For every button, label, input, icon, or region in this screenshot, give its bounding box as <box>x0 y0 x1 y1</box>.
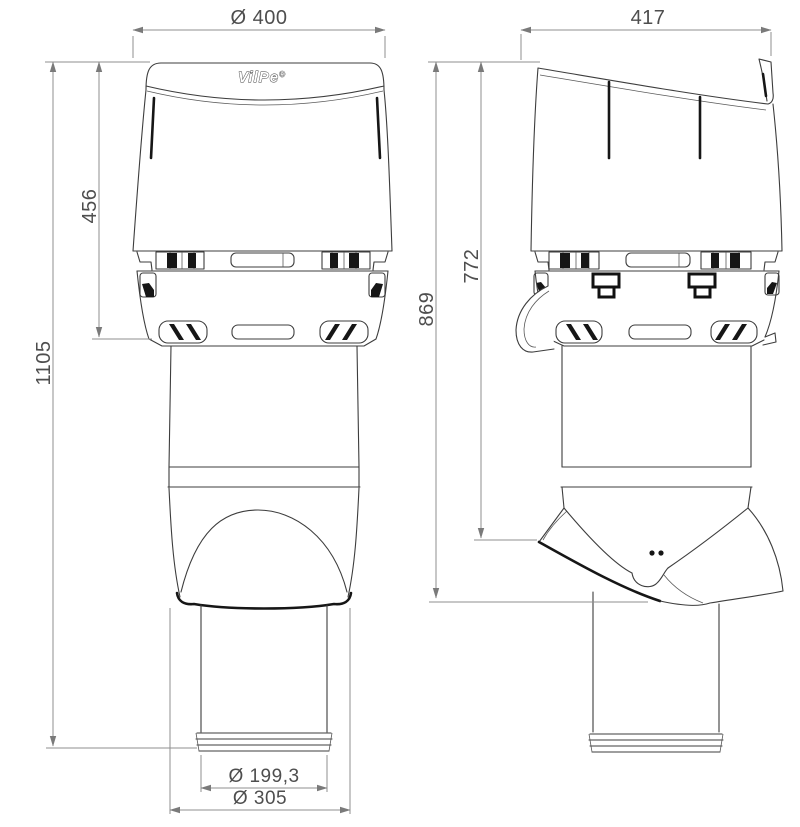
dim-cap-diameter: Ø 400 <box>133 7 385 58</box>
front-latch-black-left-1 <box>167 253 177 268</box>
side-cap-top-slope-inner <box>540 75 766 110</box>
logo-registered-mark: ® <box>279 70 286 79</box>
side-hook-right-mark <box>767 282 777 294</box>
dimension-annotations: Ø 400 417 456 1105 869 <box>33 7 771 814</box>
side-view <box>516 59 783 752</box>
side-vent-left-slash-1 <box>566 324 581 340</box>
side-skirt-rivet-2 <box>658 550 663 555</box>
side-clip-left-lower <box>599 287 614 297</box>
side-skirt-saddle-left <box>564 508 632 573</box>
side-skirt-right-edge <box>748 508 783 591</box>
side-pipe-ring-sides <box>589 734 723 752</box>
side-step-left <box>535 252 549 270</box>
front-cap-right-seam <box>377 98 380 158</box>
dim-cap-diameter-label: Ø 400 <box>231 7 288 29</box>
side-cap-right-edge <box>773 104 782 251</box>
side-skirt-rivet-1 <box>649 550 654 555</box>
front-step-right <box>373 252 388 270</box>
front-cap: VilPe® <box>133 63 392 251</box>
front-vent-right-slash-1 <box>342 324 357 340</box>
front-skirt-drip-edge <box>177 593 351 609</box>
front-latch-black-left-2 <box>188 253 196 268</box>
front-flashing-skirt <box>169 488 359 609</box>
side-cap-top-slope <box>538 68 768 104</box>
front-latch-cluster-right <box>322 252 370 269</box>
front-upper-pipe-right <box>357 346 359 467</box>
front-center-slot-upper <box>231 253 294 267</box>
side-skirt-bottom-slope <box>539 542 660 601</box>
front-skirt-right <box>348 488 359 597</box>
front-skirt-dome-arc <box>181 510 347 592</box>
dim-side-width: 417 <box>521 7 771 60</box>
side-flap-fill <box>516 286 554 352</box>
front-latch-cluster-left <box>156 252 204 269</box>
dim-side-upper-height: 772 <box>461 62 537 540</box>
side-skirt-bottom-right <box>660 591 783 605</box>
side-upper-pipe <box>561 346 752 508</box>
side-flashing-skirt <box>539 508 783 605</box>
dim-total-height: 1105 <box>33 62 197 748</box>
dim-side-total-height-label: 869 <box>416 292 438 327</box>
side-skirt-eave-edge <box>539 508 564 542</box>
side-latch-black-right-2 <box>730 253 740 268</box>
front-lower-body-left <box>137 271 149 339</box>
dim-pipe-diameter: Ø 199,3 <box>201 755 327 792</box>
side-right-notch <box>763 333 776 345</box>
front-lower-pipe <box>196 605 332 751</box>
side-skirt-saddle-right <box>668 508 748 568</box>
side-vent-center <box>629 325 691 339</box>
side-cap-left-edge <box>531 68 538 251</box>
side-clip-left-upper <box>593 274 619 287</box>
front-latch-black-right-2 <box>349 253 359 268</box>
vent-technical-drawing: VilPe® <box>0 0 800 827</box>
side-cap <box>531 59 782 251</box>
front-skirt-left <box>169 488 180 597</box>
side-clip-right-lower <box>695 287 710 297</box>
side-lower-body-right <box>765 271 779 337</box>
dim-side-upper-height-label: 772 <box>461 249 483 284</box>
dim-cap-height-label: 456 <box>79 189 101 224</box>
dim-total-height-label: 1105 <box>33 340 55 385</box>
side-latch-black-left-2 <box>581 253 589 268</box>
side-latch-black-left <box>560 253 570 268</box>
front-vent-right-slash-2 <box>325 324 340 340</box>
side-step-right <box>764 252 778 270</box>
front-view: VilPe® <box>133 63 392 751</box>
side-latch-cluster-left <box>549 252 599 269</box>
front-pipe-ring-sides <box>196 733 332 751</box>
side-pipe-taper-right <box>748 487 751 508</box>
front-band-sides <box>169 467 359 487</box>
side-center-slot-upper <box>626 253 690 267</box>
front-lower-body-right <box>376 271 388 339</box>
side-lower-pipe <box>589 592 723 752</box>
front-cap-left-seam <box>151 98 154 158</box>
logo-word: VilPe <box>238 69 279 86</box>
front-vent-left-slash-1 <box>169 324 184 340</box>
side-cap-fold-seam <box>763 74 766 96</box>
front-vent-center <box>232 325 294 339</box>
dim-side-width-label: 417 <box>631 7 666 29</box>
dim-pipe-diameter-label: Ø 199,3 <box>228 766 299 787</box>
side-pipe-taper-left <box>562 487 564 508</box>
side-skirt-eave-inner <box>543 511 567 540</box>
side-skirt-saddle-bottom <box>632 568 668 587</box>
dim-base-diameter-label: Ø 305 <box>233 788 287 809</box>
vilpe-logo: VilPe® <box>238 69 286 86</box>
front-latch-black-right-1 <box>330 253 338 268</box>
side-vent-left-slash-2 <box>583 324 598 340</box>
technical-drawing-page: VilPe® <box>0 0 800 827</box>
front-louver-section <box>133 251 392 346</box>
side-vent-right-slash-1 <box>732 324 747 340</box>
front-upper-pipe-left <box>169 346 171 467</box>
side-louver-section <box>516 252 779 352</box>
front-vent-left-slash-2 <box>186 324 201 340</box>
side-vent-right-slash-2 <box>715 324 730 340</box>
side-latch-black-right-1 <box>711 253 719 268</box>
front-upper-pipe <box>168 346 360 487</box>
side-clip-right-upper <box>689 274 715 287</box>
front-hook-right-mark <box>371 283 383 297</box>
dim-cap-height: 456 <box>79 62 152 339</box>
front-step-left <box>137 252 152 270</box>
front-hook-left-mark <box>142 283 154 297</box>
side-skirt-saddle-drop-line <box>664 575 703 603</box>
